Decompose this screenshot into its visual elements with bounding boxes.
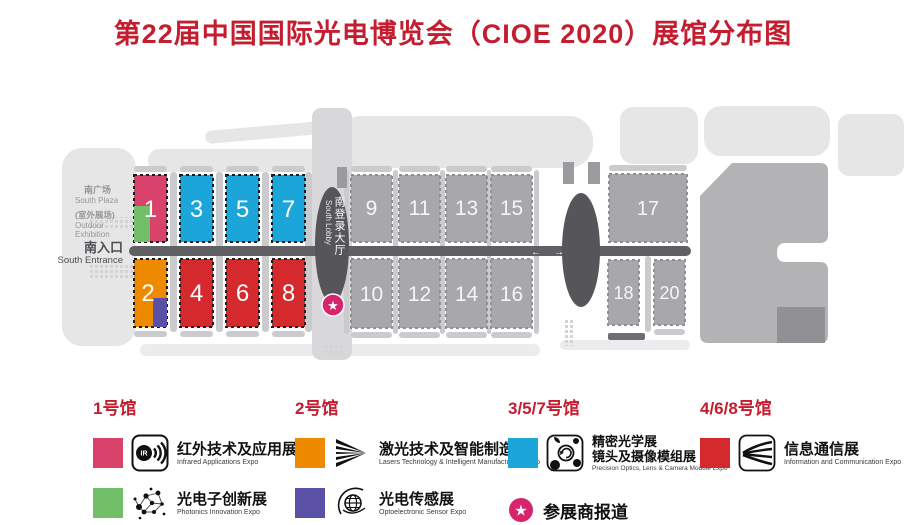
hall-7: 7: [272, 175, 305, 242]
svg-text:11: 11: [409, 197, 431, 220]
checkin-star-marker: ★: [322, 294, 344, 316]
star-badge-icon: ★: [508, 497, 534, 523]
page-title: 第22届中国国际光电博览会（CIOE 2020）展馆分布图: [0, 12, 906, 51]
main-corridor: ← →: [129, 246, 691, 258]
outdoor-label-en1: Outdoor: [75, 221, 104, 230]
svg-text:20: 20: [659, 283, 679, 303]
svg-text:17: 17: [637, 198, 659, 220]
color-swatch-red: [700, 438, 730, 468]
svg-text:14: 14: [455, 283, 479, 306]
legend-section-hall357: 3/5/7号馆 精密光学展 镜头及摄像模组展 Precision Optics,…: [508, 394, 727, 523]
east-building-annex: [777, 307, 825, 343]
legend-section-hall2: 2号馆 激光技术及智能制造展 Lasers Technology & Intel…: [295, 394, 540, 523]
svg-text:3: 3: [190, 196, 203, 223]
legend-label-en: Infrared Applications Expo: [177, 459, 297, 466]
checkin-label: 参展商报道: [543, 498, 628, 523]
color-swatch-pink: [93, 438, 123, 468]
star-icon: ★: [327, 298, 339, 313]
hall-5: 5: [226, 175, 259, 242]
legend-item-photonics: 光电子创新展 Photonics Innovation Expo: [93, 483, 297, 523]
legend-label-en: Information and Communication Expo: [784, 459, 901, 466]
precision-optics-icon: [546, 434, 584, 472]
south-plaza-label-cn: 南广场: [84, 184, 111, 195]
hall-10: 10: [351, 259, 392, 328]
color-swatch-cyan: [508, 438, 538, 468]
hall-13: 13: [446, 175, 487, 242]
svg-text:2: 2: [141, 280, 154, 307]
legend-label-cn: 信息通信展: [784, 441, 901, 458]
hall-17: 17: [609, 174, 687, 242]
svg-text:12: 12: [408, 283, 431, 306]
outdoor-label-cn: (室外展场): [75, 210, 115, 220]
dock-bar: [608, 333, 645, 340]
svg-text:16: 16: [500, 283, 523, 306]
svg-text:6: 6: [236, 280, 249, 307]
hall-14: 14: [446, 259, 487, 328]
legend-label-en: Optoelectronic Sensor Expo: [379, 509, 466, 516]
hall-15: 15: [491, 175, 532, 242]
color-swatch-purple: [295, 488, 325, 518]
svg-text:10: 10: [360, 283, 383, 306]
sensor-eye-icon: [333, 484, 371, 522]
hall-4: 4: [180, 259, 213, 327]
legend-item-optics: 精密光学展 镜头及摄像模组展 Precision Optics, Lens & …: [508, 433, 727, 473]
hall-8: 8: [272, 259, 305, 327]
legend-header-hall2: 2号馆: [295, 394, 540, 419]
svg-text:18: 18: [613, 283, 633, 303]
svg-text:7: 7: [282, 196, 295, 223]
hall-3: 3: [180, 175, 213, 242]
venue-map: ← → 1 3 5 7: [0, 85, 906, 385]
hall-18: 18: [608, 260, 639, 325]
poster: 第22届中国国际光电博览会（CIOE 2020）展馆分布图: [0, 0, 906, 525]
south-entrance-label-en: South Entrance: [58, 255, 124, 266]
legend-item-laser: 激光技术及智能制造展 Lasers Technology & Intellige…: [295, 433, 540, 473]
hall-11: 11: [399, 175, 440, 242]
hall-1: 1: [134, 175, 167, 242]
infrared-icon: IR: [131, 434, 169, 472]
hall-16: 16: [491, 259, 532, 328]
legend-label-cn: 红外技术及应用展: [177, 441, 297, 458]
arrow-left-icon: ←: [531, 247, 541, 258]
legend-label-cn: 光电传感展: [379, 491, 466, 508]
south-lobby-label-cn: 南登录大厅: [333, 196, 346, 256]
svg-text:4: 4: [190, 280, 203, 307]
legend-section-hall468: 4/6/8号馆 信息通信展 Information and Communicat…: [700, 394, 901, 473]
south-lobby-label-en: South Lobby: [324, 200, 333, 245]
legend-header-hall357: 3/5/7号馆: [508, 394, 727, 419]
legend-label-cn: 光电子创新展: [177, 491, 267, 508]
laser-icon: [333, 434, 371, 472]
legend-label-en: Photonics Innovation Expo: [177, 509, 267, 516]
svg-text:13: 13: [455, 197, 478, 220]
color-swatch-green: [93, 488, 123, 518]
south-entrance-label-cn: 南入口: [84, 240, 123, 255]
svg-text:8: 8: [282, 280, 295, 307]
legend-header-hall1: 1号馆: [93, 394, 297, 419]
outdoor-label-en2: Exhibition: [75, 230, 110, 239]
svg-text:1: 1: [144, 196, 157, 223]
network-icon: [131, 484, 169, 522]
legend-header-hall468: 4/6/8号馆: [700, 394, 901, 419]
color-swatch-orange: [295, 438, 325, 468]
legend-item-sensor: 光电传感展 Optoelectronic Sensor Expo: [295, 483, 540, 523]
svg-text:5: 5: [236, 196, 249, 223]
legend-item-communication: 信息通信展 Information and Communication Expo: [700, 433, 901, 473]
hall-20: 20: [654, 260, 685, 325]
hall-2-purple-zone: [153, 298, 167, 327]
hall-9: 9: [351, 175, 392, 242]
svg-text:IR: IR: [141, 451, 148, 458]
communication-icon: [738, 434, 776, 472]
hall-6: 6: [226, 259, 259, 327]
hall-2: 2: [134, 259, 167, 327]
south-lobby: 南登录大厅 South Lobby: [315, 187, 349, 303]
legend-item-checkin: ★ 参展商报道: [508, 497, 727, 523]
svg-text:15: 15: [500, 197, 523, 220]
legend-section-hall1: 1号馆 IR 红外技术及应用展 Infrared Applications Ex…: [93, 394, 297, 523]
star-icon: ★: [514, 503, 527, 520]
central-lobby: [562, 193, 600, 307]
legend-item-infrared: IR 红外技术及应用展 Infrared Applications Expo: [93, 433, 297, 473]
svg-text:9: 9: [366, 197, 378, 220]
hall-12: 12: [399, 259, 440, 328]
south-plaza-label-en: South Plaza: [75, 196, 119, 205]
